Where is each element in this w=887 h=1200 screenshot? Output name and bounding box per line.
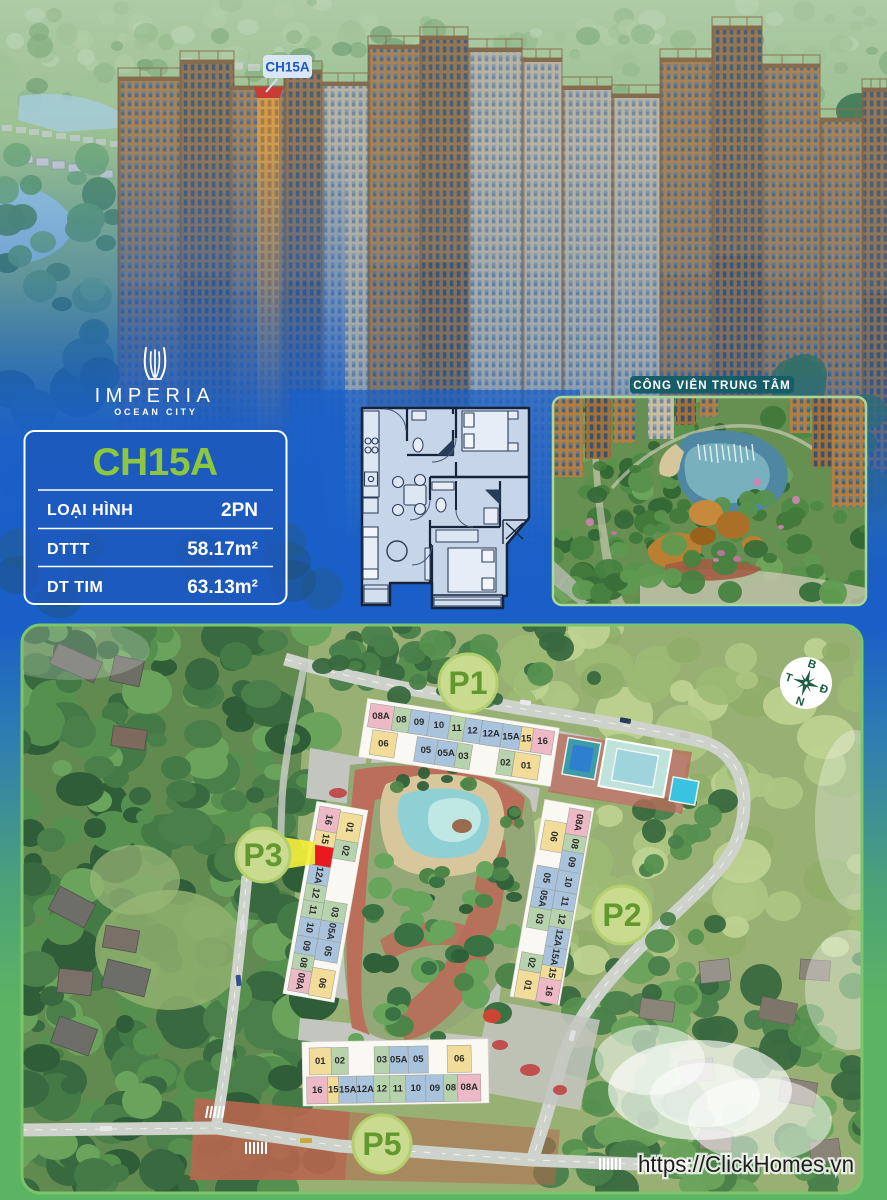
svg-text:CÔNG VIÊN TRUNG TÂM: CÔNG VIÊN TRUNG TÂM: [633, 379, 791, 392]
svg-text:03: 03: [458, 751, 469, 762]
svg-text:IMPERIA: IMPERIA: [95, 385, 216, 407]
svg-text:LOẠI HÌNH: LOẠI HÌNH: [47, 500, 133, 519]
svg-text:58.17m²: 58.17m²: [187, 539, 258, 560]
svg-text:02: 02: [525, 956, 538, 968]
svg-text:05: 05: [421, 745, 432, 756]
svg-text:03: 03: [376, 1055, 387, 1066]
svg-text:DT TIM: DT TIM: [47, 579, 103, 596]
svg-text:06: 06: [454, 1053, 465, 1064]
svg-text:08: 08: [396, 714, 407, 725]
svg-text:10: 10: [303, 921, 316, 933]
svg-text:CH15A: CH15A: [92, 441, 218, 484]
svg-text:08A: 08A: [461, 1082, 479, 1093]
svg-text:03: 03: [533, 913, 546, 925]
svg-text:16: 16: [537, 736, 548, 747]
svg-text:02: 02: [334, 1055, 345, 1066]
svg-text:15A: 15A: [339, 1084, 357, 1095]
svg-text:06: 06: [315, 977, 328, 989]
svg-text:DTTT: DTTT: [47, 541, 90, 558]
svg-text:02: 02: [339, 844, 352, 856]
svg-text:03: 03: [328, 906, 341, 918]
svg-text:12: 12: [376, 1084, 387, 1095]
svg-text:https://ClickHomes.vn: https://ClickHomes.vn: [638, 1151, 854, 1177]
svg-text:08: 08: [568, 838, 581, 850]
svg-text:09: 09: [429, 1083, 440, 1094]
svg-text:P3: P3: [243, 837, 282, 873]
svg-text:01: 01: [315, 1056, 326, 1067]
svg-text:02: 02: [500, 757, 511, 768]
svg-text:12: 12: [555, 913, 568, 925]
svg-text:P2: P2: [602, 897, 641, 933]
svg-text:10: 10: [410, 1083, 421, 1094]
svg-text:06: 06: [378, 738, 389, 749]
svg-text:01: 01: [521, 760, 532, 771]
svg-text:08A: 08A: [372, 711, 390, 722]
svg-text:16: 16: [312, 1085, 323, 1096]
svg-text:OCEAN CITY: OCEAN CITY: [114, 407, 198, 417]
svg-text:12A: 12A: [482, 728, 500, 739]
svg-text:11: 11: [452, 723, 463, 734]
svg-text:15A: 15A: [502, 731, 520, 742]
svg-text:10: 10: [561, 876, 574, 888]
svg-text:15: 15: [328, 1085, 339, 1096]
svg-text:12: 12: [309, 887, 322, 899]
svg-text:11: 11: [393, 1083, 404, 1094]
svg-text:09: 09: [414, 717, 425, 728]
svg-text:P5: P5: [362, 1126, 401, 1162]
svg-text:09: 09: [565, 856, 578, 868]
svg-text:10: 10: [434, 720, 445, 731]
svg-text:12A: 12A: [357, 1084, 375, 1095]
svg-text:2PN: 2PN: [221, 500, 258, 521]
svg-text:05: 05: [413, 1054, 424, 1065]
svg-text:12: 12: [467, 725, 478, 736]
svg-text:15: 15: [521, 734, 532, 745]
svg-text:P1: P1: [448, 665, 487, 701]
svg-text:05A: 05A: [390, 1054, 408, 1065]
svg-text:63.13m²: 63.13m²: [187, 577, 258, 598]
svg-text:09: 09: [300, 940, 313, 952]
svg-text:08: 08: [445, 1082, 456, 1093]
svg-text:16: 16: [542, 985, 555, 997]
svg-text:05A: 05A: [437, 748, 455, 759]
svg-text:06: 06: [547, 830, 560, 842]
svg-text:08: 08: [297, 956, 310, 968]
svg-text:16: 16: [322, 813, 335, 825]
